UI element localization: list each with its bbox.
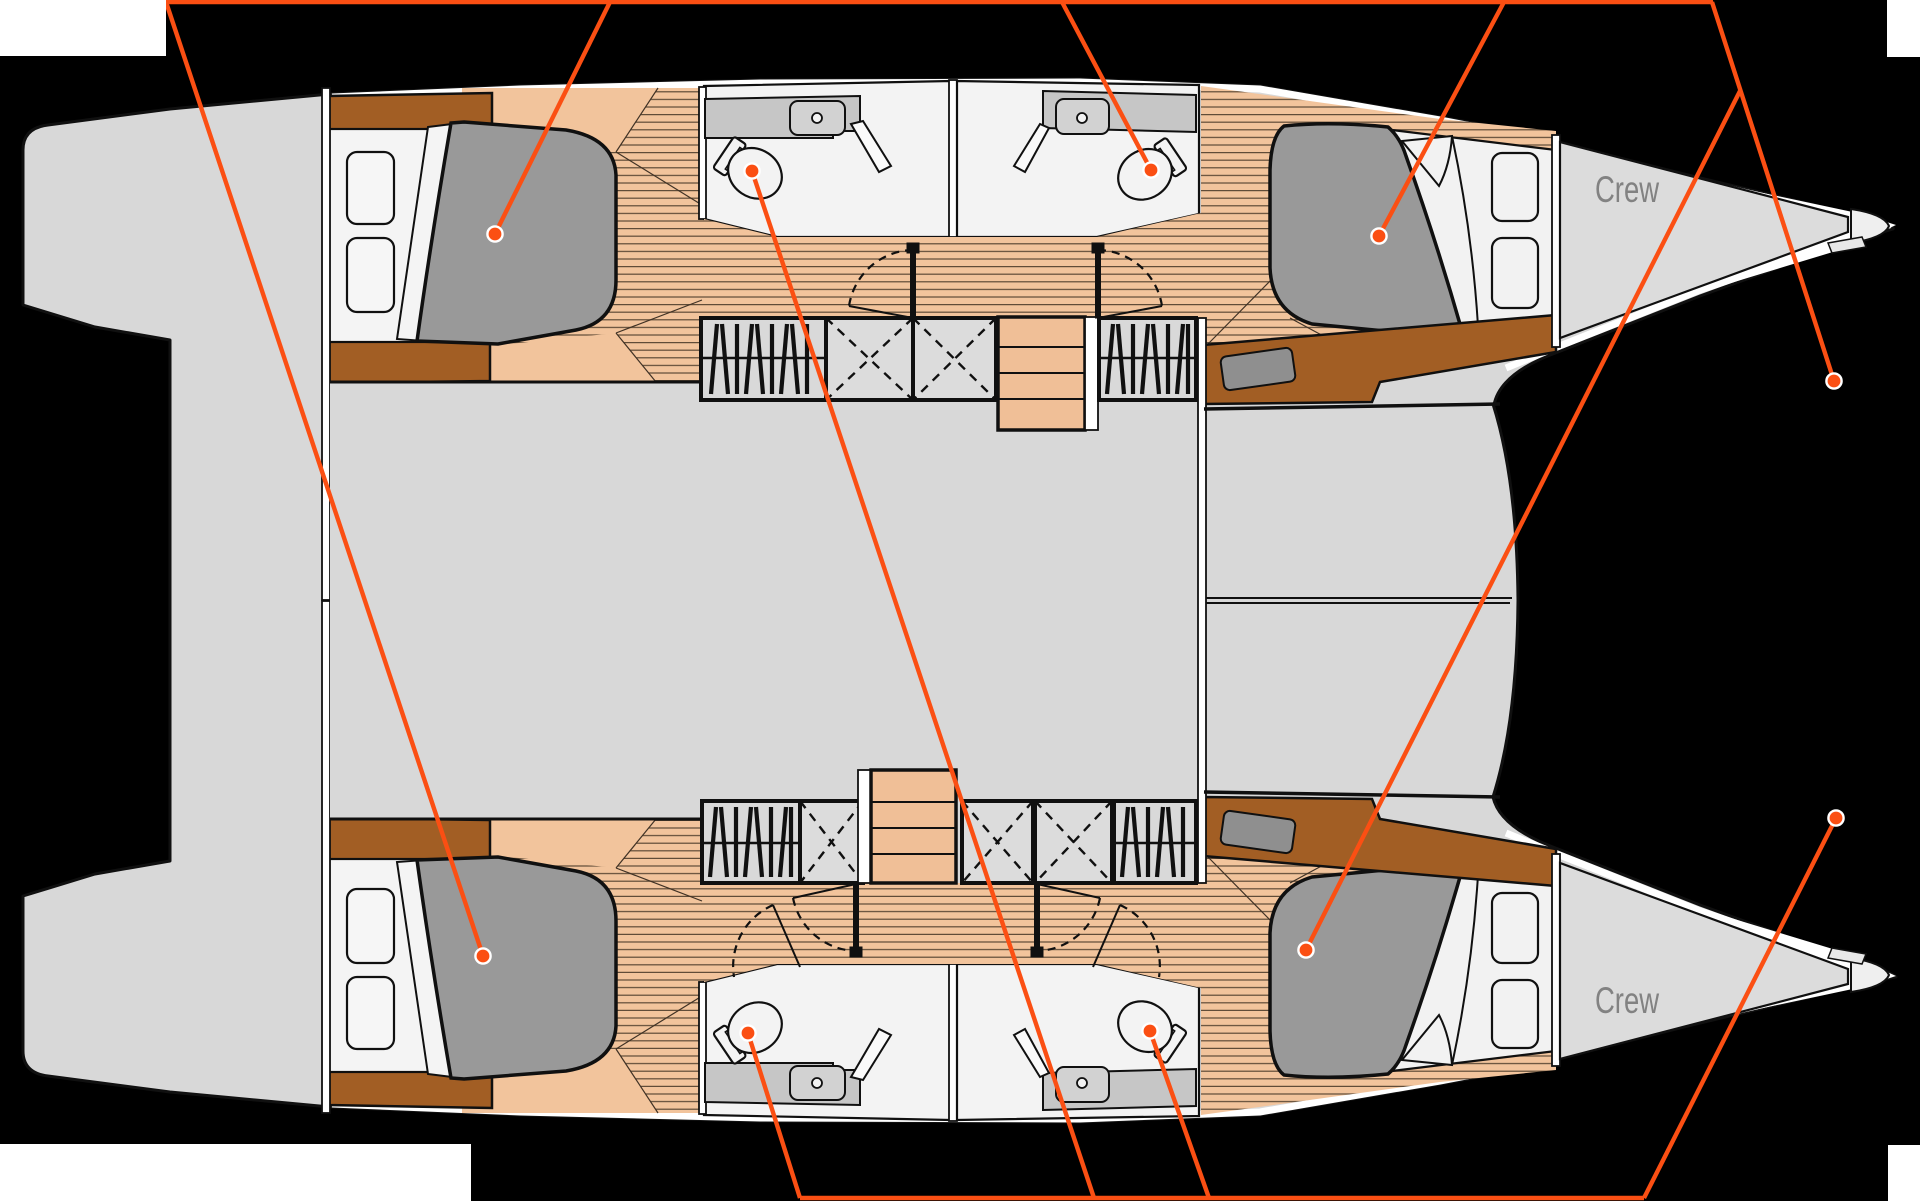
svg-text:Crew: Crew: [1595, 980, 1659, 1021]
svg-text:Crew: Crew: [1595, 169, 1659, 210]
